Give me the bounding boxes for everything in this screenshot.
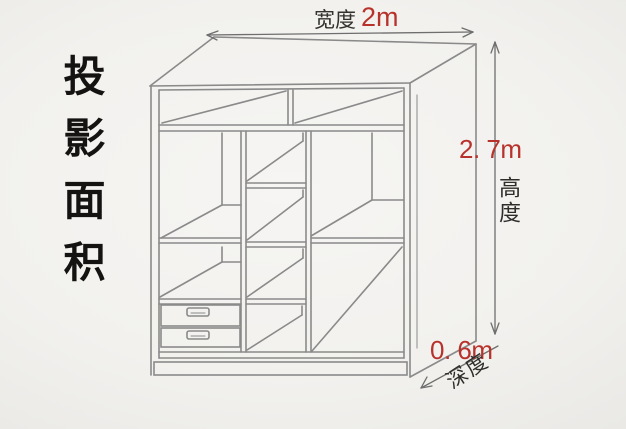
width-dimension: 宽度 2m <box>314 4 399 31</box>
width-dimension-label: 宽度 <box>314 10 356 31</box>
drawer-top <box>161 305 240 326</box>
wardrobe-front-frame <box>150 83 410 377</box>
wardrobe-right-column <box>311 133 404 351</box>
drawer-handle <box>187 308 209 316</box>
wardrobe-top-row <box>159 90 404 131</box>
width-dimension-value: 2m <box>361 4 399 31</box>
projection-area-label: 投影面积 <box>60 54 102 302</box>
wardrobe-top-face <box>150 37 476 86</box>
drawer-handle <box>187 331 209 339</box>
diagram-canvas: 投影面积 宽度 2m 2. 7m 高度 0. 6m 深度 <box>0 0 626 429</box>
drawer-bottom <box>161 328 240 347</box>
wardrobe-left-column <box>159 133 241 347</box>
wardrobe-middle-column <box>246 133 306 350</box>
wardrobe-plinth <box>154 362 407 375</box>
wardrobe-side-face <box>410 44 476 377</box>
height-dimension-value: 2. 7m <box>459 136 522 162</box>
height-dimension-label: 高度 <box>497 176 519 226</box>
